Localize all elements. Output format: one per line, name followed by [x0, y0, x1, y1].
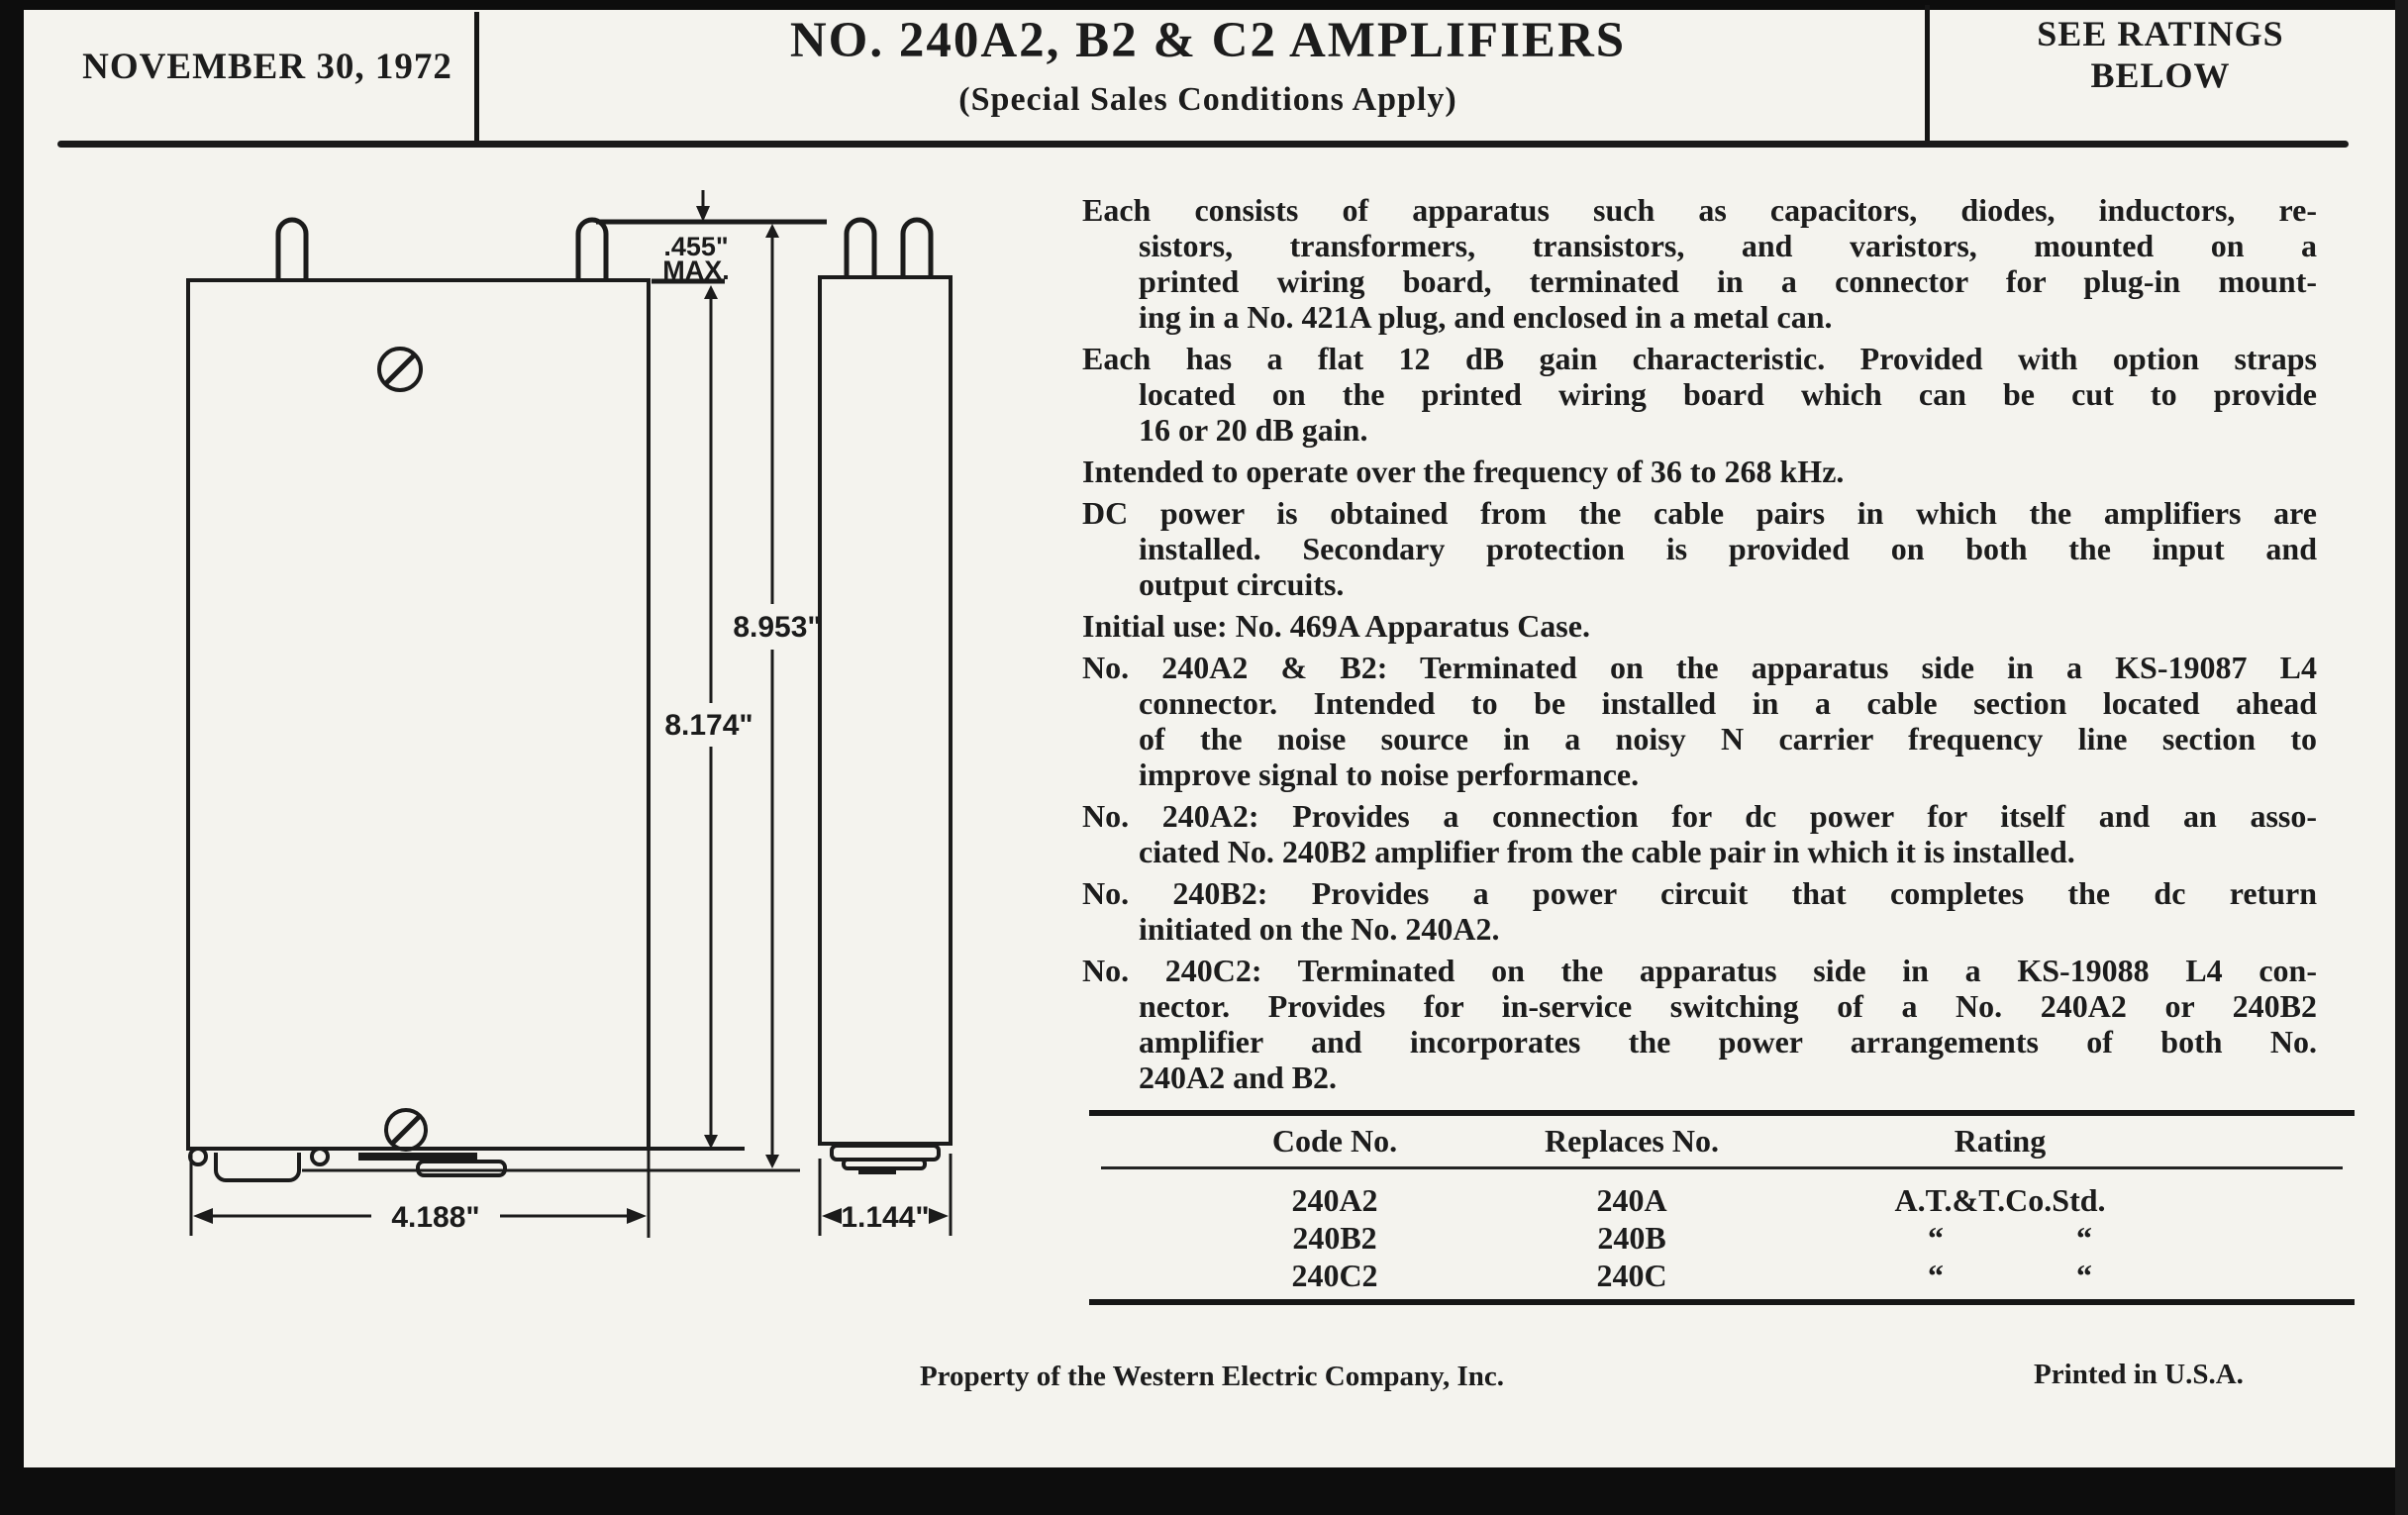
spec-text-line: connector. Intended to be installed in a… [1082, 685, 2317, 721]
header-rule [57, 141, 2349, 148]
side-pin-left [847, 220, 874, 277]
spec-text-line: No. 240A2 & B2: Terminated on the appara… [1082, 650, 2317, 685]
spec-text-line: ing in a No. 421A plug, and enclosed in … [1082, 299, 2317, 335]
spec-text-line: Initial use: No. 469A Apparatus Case. [1082, 608, 2317, 644]
scan-edge-bottom [0, 1467, 2408, 1515]
column-header-replaces: Replaces No. [1513, 1123, 1751, 1160]
outline-drawing: .455" MAX. 8.953" 8.174" 4.188" 1.144" [139, 178, 1030, 1267]
dim-can-height-label: 8.174" [664, 709, 752, 742]
dim-pin-height-max-label: MAX. [662, 255, 730, 285]
table-row: 240C2240C““ [1089, 1258, 2355, 1295]
spec-sheet-page: NOVEMBER 30, 1972 NO. 240A2, B2 & C2 AMP… [0, 0, 2408, 1515]
spec-text-line: No. 240A2: Provides a connection for dc … [1082, 798, 2317, 834]
dim-overall-height-label: 8.953" [733, 611, 821, 644]
cell-replaces-no: 240B [1513, 1220, 1751, 1257]
spec-text-line: located on the printed wiring board whic… [1082, 376, 2317, 412]
table-rule-header [1101, 1166, 2343, 1169]
spec-paragraph: No. 240C2: Terminated on the apparatus s… [1082, 953, 2317, 1095]
dimension-labels: .455" MAX. 8.953" 8.174" 4.188" 1.144" [391, 232, 929, 1234]
dim-front-width-label: 4.188" [391, 1201, 479, 1234]
column-header-code: Code No. [1216, 1123, 1454, 1160]
table-rule-top [1089, 1110, 2355, 1116]
spec-text-line: ciated No. 240B2 amplifier from the cabl… [1082, 834, 2317, 869]
side-pin-right [903, 220, 931, 277]
cell-replaces-no: 240A [1513, 1182, 1751, 1219]
cell-replaces-no: 240C [1513, 1258, 1751, 1294]
column-header-rating: Rating [1881, 1123, 2119, 1160]
scan-edge-top [0, 0, 2408, 10]
spec-paragraph: No. 240A2: Provides a connection for dc … [1082, 798, 2317, 869]
side-connector-step2 [844, 1160, 925, 1168]
spec-text-line: Each consists of apparatus such as capac… [1082, 192, 2317, 228]
spec-text-line: printed wiring board, terminated in a co… [1082, 263, 2317, 299]
spec-paragraph: No. 240A2 & B2: Terminated on the appara… [1082, 650, 2317, 792]
side-view-can [820, 277, 951, 1144]
front-pin-right [578, 220, 606, 280]
front-view-can [188, 280, 649, 1149]
ratings-note-line2: BELOW [1939, 54, 2382, 96]
spec-text-line: Each has a flat 12 dB gain characteristi… [1082, 341, 2317, 376]
screw-head-icon-bottom [386, 1110, 426, 1150]
front-pin-left [278, 220, 306, 280]
page-subtitle: (Special Sales Conditions Apply) [760, 81, 1655, 119]
side-connector-step1 [832, 1146, 939, 1160]
page-title: NO. 240A2, B2 & C2 AMPLIFIERS [760, 12, 1655, 69]
spec-paragraph: DC power is obtained from the cable pair… [1082, 495, 2317, 602]
dim-side-width-label: 1.144" [841, 1201, 929, 1234]
spec-paragraph: Each consists of apparatus such as capac… [1082, 192, 2317, 335]
ratings-table: Code No. Replaces No. Rating 240A2240AA.… [1089, 1099, 2355, 1317]
front-foot-bracket [216, 1153, 299, 1180]
spec-text-line: Intended to operate over the frequency o… [1082, 454, 2317, 489]
spec-text-line: installed. Secondary protection is provi… [1082, 531, 2317, 566]
cell-rating: A.T.&T.Co.Std. [1852, 1182, 2149, 1219]
spec-text-line: 240A2 and B2. [1082, 1060, 2317, 1095]
spec-text-line: output circuits. [1082, 566, 2317, 602]
spec-text-line: DC power is obtained from the cable pair… [1082, 495, 2317, 531]
dimension-lines [191, 190, 951, 1238]
spec-paragraph: Intended to operate over the frequency o… [1082, 454, 2317, 489]
table-row: 240A2240AA.T.&T.Co.Std. [1089, 1182, 2355, 1220]
cell-code-no: 240B2 [1216, 1220, 1454, 1257]
ratings-note-line1: SEE RATINGS [1939, 13, 2382, 54]
spec-paragraph: Each has a flat 12 dB gain characteristi… [1082, 341, 2317, 448]
cell-rating-ditto: “ [1886, 1258, 1985, 1294]
header-divider-left [474, 12, 479, 145]
spec-text-line: initiated on the No. 240A2. [1082, 911, 2317, 947]
table-rule-bottom [1089, 1299, 2355, 1305]
front-foot-hook-right [312, 1149, 328, 1164]
spec-paragraph: Initial use: No. 469A Apparatus Case. [1082, 608, 2317, 644]
scan-edge-right [2395, 0, 2408, 1515]
table-row: 240B2240B““ [1089, 1220, 2355, 1258]
spec-text-line: 16 or 20 dB gain. [1082, 412, 2317, 448]
spec-text-line: No. 240B2: Provides a power circuit that… [1082, 875, 2317, 911]
footer-property-note: Property of the Western Electric Company… [865, 1361, 1558, 1393]
cell-rating-ditto: “ [2035, 1258, 2134, 1294]
spec-text-line: sistors, transformers, transistors, and … [1082, 228, 2317, 263]
spec-text-line: No. 240C2: Terminated on the apparatus s… [1082, 953, 2317, 988]
cell-code-no: 240C2 [1216, 1258, 1454, 1294]
issue-date: NOVEMBER 30, 1972 [57, 46, 477, 88]
spec-paragraphs: Each consists of apparatus such as capac… [1082, 192, 2317, 1101]
cell-code-no: 240A2 [1216, 1182, 1454, 1219]
scan-edge-left [0, 0, 24, 1515]
spec-text-line: improve signal to noise performance. [1082, 757, 2317, 792]
screw-head-icon-top [379, 349, 421, 390]
spec-text-line: of the noise source in a noisy N carrier… [1082, 721, 2317, 757]
cell-rating-ditto: “ [1886, 1220, 1985, 1257]
spec-text-line: nector. Provides for in-service switchin… [1082, 988, 2317, 1024]
header-divider-right [1925, 5, 1930, 141]
cell-rating-ditto: “ [2035, 1220, 2134, 1257]
footer-printed-note: Printed in U.S.A. [1990, 1359, 2287, 1391]
spec-text-line: amplifier and incorporates the power arr… [1082, 1024, 2317, 1060]
spec-paragraph: No. 240B2: Provides a power circuit that… [1082, 875, 2317, 947]
front-connector-plate [418, 1161, 505, 1175]
ratings-note: SEE RATINGS BELOW [1939, 13, 2382, 96]
table-header-row: Code No. Replaces No. Rating [1089, 1123, 2355, 1161]
